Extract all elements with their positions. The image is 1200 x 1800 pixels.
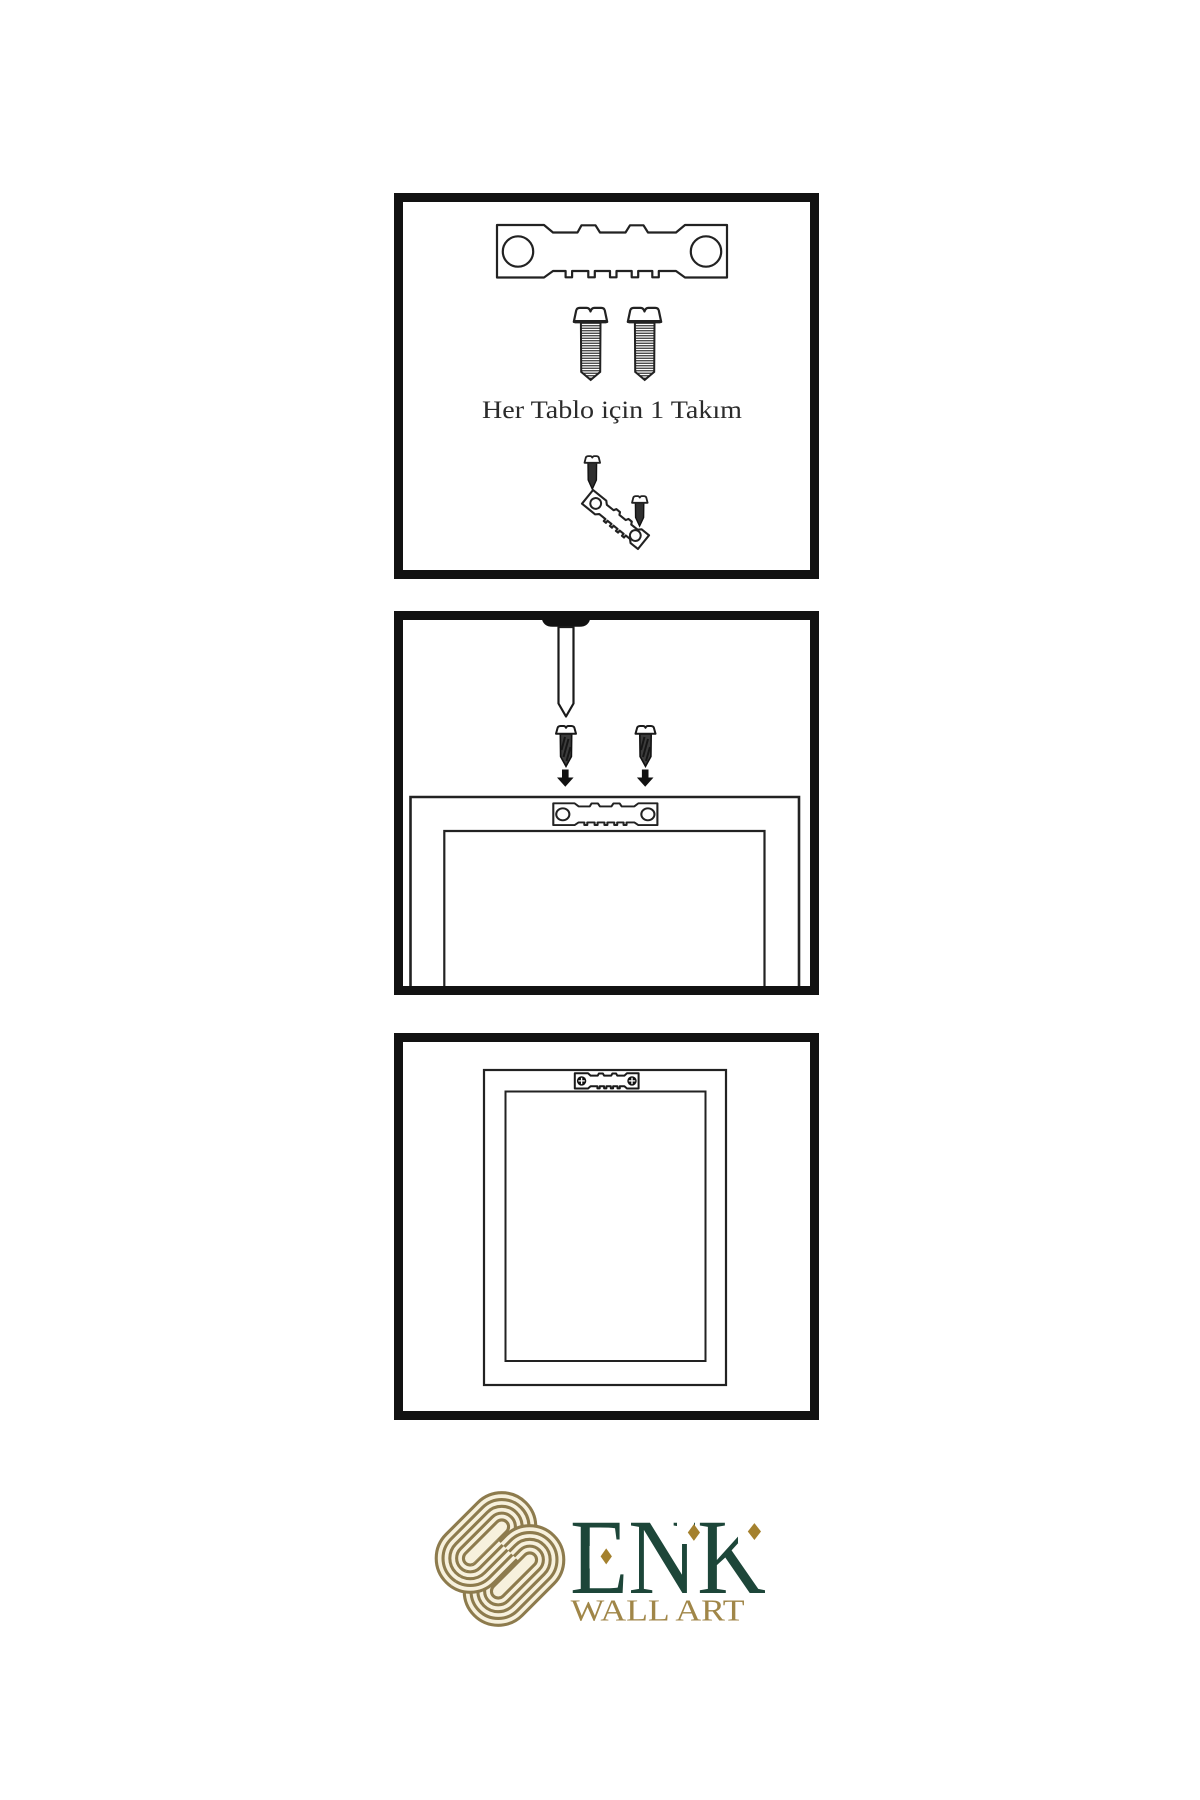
svg-text:Her Tablo için 1 Takım: Her Tablo için 1 Takım (482, 395, 742, 424)
svg-text:WALL ART: WALL ART (571, 1593, 745, 1628)
